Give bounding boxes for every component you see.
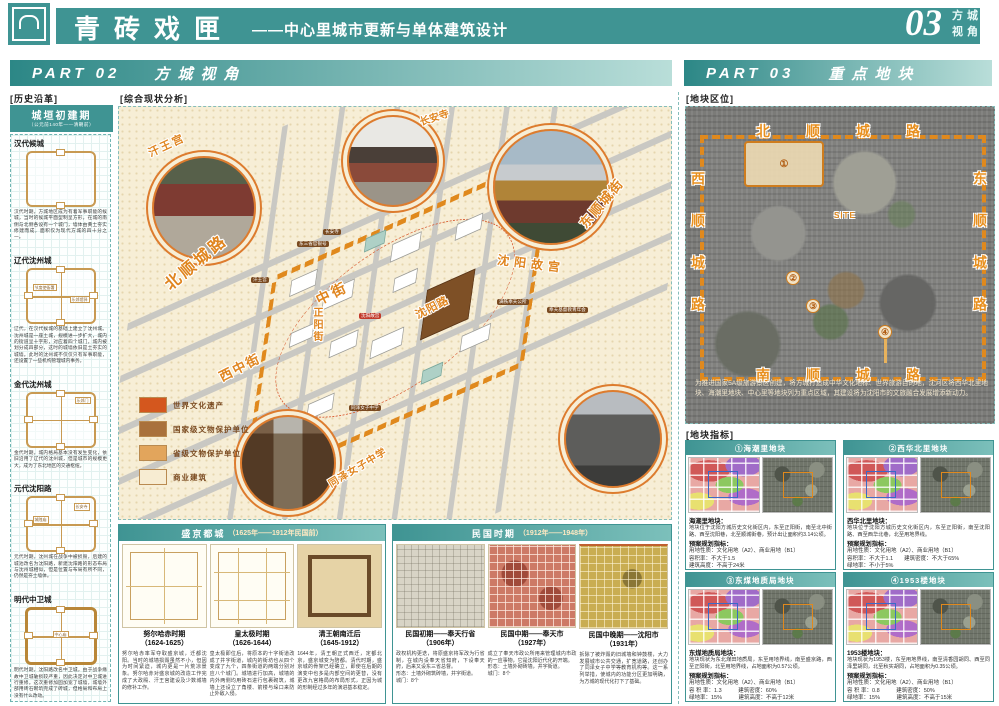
han-city-diagram	[26, 151, 96, 207]
part02-title: 方城视角	[154, 63, 246, 84]
historic-building-photo	[564, 390, 662, 488]
hanwanggong-label: 汗王宫	[145, 130, 187, 161]
plot-boundary-orange	[783, 472, 813, 498]
period-name: 民国中期——奉天市	[501, 631, 564, 638]
zoning-map-image	[846, 589, 918, 645]
plot-panel-title: ③东煤地质局地块	[686, 573, 835, 587]
shenyang-city-map-image	[579, 544, 668, 629]
plot-boundary-orange	[941, 604, 971, 630]
fengtian-province-map-image	[396, 544, 485, 628]
plot2-marker: ②	[786, 271, 800, 285]
plot-images	[846, 457, 991, 513]
logo-arch-icon	[19, 15, 39, 29]
era-yuan: 元代沈阳路 城隍庙 长安寺 元代时期，沈州城在战争中被损毁，后建的城池改名为沈阳…	[14, 482, 107, 579]
plot-metric-line: 容 积 率：0.8 建筑密度：50%	[847, 688, 990, 695]
legend-row: 商业建筑	[139, 465, 309, 489]
gate-icon	[56, 390, 65, 397]
nurhaci-map-image	[122, 544, 207, 628]
period-text: 1644年，清王朝正式西迁，定都北京，盛京城变为陪都。清代时期，盛京城的骨架已经…	[297, 651, 382, 692]
plot-panel-title: ②西华北里地块	[844, 441, 993, 455]
period-caption: 民国中期——奉天市 （1927年）	[488, 630, 577, 649]
plot-panel-3: ③东煤地质局地块 东煤地质局地块： 地块现状为东北煤田地质局，东至用地界线，南至…	[685, 572, 836, 702]
road-label-west: 西顺城路	[688, 171, 708, 339]
plot-metric-line: 用地性质：文化用地（A2）、商业用地（B1）	[689, 548, 832, 555]
gate-icon	[24, 416, 33, 423]
diagram-label: 长安寺	[74, 503, 90, 510]
period-name: 皇太极时期	[235, 631, 270, 638]
diagram-street	[61, 394, 63, 446]
period-text: 努尔哈赤率军夺取盛京城，迁都沈阳。当时的城墙损毁虽然不小，但因为时间紧迫，城内更…	[122, 651, 207, 692]
plot-boundary-orange	[941, 472, 971, 498]
history-header-title: 城垣初建期	[10, 105, 113, 122]
plot-panel-4: ④1953楼地块 1953楼地块： 地块现状为1953楼，东至用地界线，南至清香…	[843, 572, 994, 702]
legend-row: 省级文物保护单位	[139, 441, 309, 465]
gate-icon	[89, 520, 98, 527]
plot-name: 海潮里地块：	[689, 516, 832, 525]
plot-metric-line: 容 积 率：1.3 建筑密度：60%	[689, 688, 832, 695]
plot-boundary-blue	[708, 603, 738, 630]
satellite-thumb-image	[920, 589, 992, 645]
plot-metric-line: 容积率：不大于1.5	[689, 556, 832, 563]
legend-swatch	[139, 421, 167, 437]
period-column: 皇太极时期 （1626-1644） 皇太极即位后，将原本的十字街道改成了井字街道…	[210, 544, 295, 698]
gate-icon	[89, 416, 98, 423]
plot-panel-2: ②西华北里地块 西华北里地块： 地块位于沈阳方城历史文化街区内，东至正阳街，南至…	[843, 440, 994, 570]
road-label-north: 北顺城路	[756, 121, 956, 141]
legend-row: 国家级文物保护单位	[139, 417, 309, 441]
period-years: （1927年）	[514, 640, 551, 647]
satellite-thumb-image	[920, 457, 992, 513]
ming-city-diagram: 中心庙	[25, 607, 97, 665]
diagram-label: 节度使衙署	[33, 284, 57, 291]
page-label-bottom: 视角	[952, 23, 982, 39]
plot-metrics-label: 预案规划指标：	[847, 671, 990, 680]
plot-metric-line: 绿地率：15% 建筑高度：不高于15米	[847, 695, 990, 702]
legend-swatch	[139, 445, 167, 461]
yuan-city-diagram: 城隍庙 长安寺	[26, 496, 96, 552]
gate-icon	[56, 202, 65, 209]
changansi-photo	[347, 115, 439, 207]
plot4-marker: ④	[878, 325, 892, 339]
gate-icon	[24, 520, 33, 527]
map-line	[214, 600, 290, 601]
plot-boundary-orange	[783, 604, 813, 630]
building-tag: 奉天基督教青年会	[547, 307, 588, 313]
plot-metric-line: 容积率：不大于1.1 建筑密度：不大于65%	[847, 556, 990, 563]
plot-text: 东煤地质局地块： 地块现状为东北煤田地质局，东至用地界线，南至盛京路，西至正阳街…	[686, 647, 835, 702]
palace-red-tag: 沈阳故宫	[359, 313, 381, 319]
legend-label: 省级文物保护单位	[173, 448, 241, 459]
plot-metric-line: 绿地率：不小于5%	[847, 563, 990, 570]
gate-icon	[56, 319, 65, 326]
plot-panel-title: ①海潮里地块	[686, 441, 835, 455]
minguo-title: 民国时期	[472, 527, 516, 540]
era-title: 元代沈阳路	[14, 483, 107, 494]
plot-desc: 地块现状为东北煤田地质局，东至用地界线，南至盛京路，西至正阳街，北至用地界线，占…	[689, 657, 832, 670]
period-column: 民国中晚期——沈阳市 （1931年） 拆除了被炸毁的旧城墙和钟鼓楼，大力发展城市…	[579, 544, 668, 686]
period-name: 民国初期——奉天行省	[405, 631, 475, 638]
plot-desc: 地块位于沈阳方城历史文化街区内，东至正阳街，南至沈阳路、西至西华北巷，北至用地界…	[847, 525, 990, 538]
isometric-analysis-map: 汗王宫 长安寺 沈阳故宫 同泽女子中学 北顺城路 东顺城街 中街 西中街 正阳街…	[118, 106, 672, 520]
period-name: 努尔哈赤时期	[143, 631, 185, 638]
gate-icon	[56, 547, 65, 554]
diagram-label: 中心庙	[53, 631, 69, 638]
plot-name: 1953楼地块：	[847, 648, 990, 657]
legend-label: 国家级文物保护单位	[173, 424, 250, 435]
plot-metric-line: 用地性质：文化用地（A2）、商业用地（B1）	[847, 548, 990, 555]
map-legend: 世界文化遗产 国家级文物保护单位 省级文物保护单位 商业建筑	[139, 393, 309, 489]
era-han: 汉代候城 汉代时期，方城地区成为有着军事职能的候城，当时的候城平面型制呈方形，在…	[14, 137, 107, 241]
gate-icon	[56, 266, 65, 273]
shengjing-panel-header: 盛京都城 （1625年——1912年民国前）	[119, 525, 385, 541]
plot-text: 海潮里地块： 地块位于沈阳方城历史文化街区内，东至正阳街，南至北中街路、西至沈阳…	[686, 515, 835, 570]
board-subtitle: ——中心里城市更新与单体建筑设计	[252, 19, 508, 40]
logo-frame	[12, 7, 46, 41]
map-line	[266, 548, 267, 623]
part03-bar: PART 03 重点地块	[684, 60, 992, 86]
presentation-board: 青砖戏匣 ——中心里城市更新与单体建筑设计 03 方城 视角 PART 02 方…	[0, 0, 999, 706]
analysis-section-label: [综合现状分析]	[120, 92, 188, 105]
page-number: 03	[905, 2, 942, 45]
minguo-subtitle: （1912年——1948年）	[519, 528, 592, 538]
shengjing-body: 努尔哈赤时期 （1624-1625） 努尔哈赤率军夺取盛京城，迁都沈阳。当时的城…	[119, 541, 385, 701]
zoning-map-image	[688, 457, 760, 513]
legend-label: 世界文化遗产	[173, 400, 224, 411]
history-header: 城垣初建期 （公元前140年——清朝前）	[10, 105, 113, 132]
period-years: （1624-1625）	[141, 640, 188, 647]
period-caption: 民国初期——奉天行省 （1906年）	[396, 630, 485, 649]
legend-row: 世界文化遗产	[139, 393, 309, 417]
zoning-map-image	[846, 457, 918, 513]
part02-label: PART 02	[32, 65, 120, 82]
period-text: 政权机构更迭，将原盛京将军改为行省制，在城内设奉天省知府，下设奉天府，后来又设东…	[396, 651, 485, 685]
minguo-panel: 民国时期 （1912年——1948年） 民国初期——奉天行省 （1906年） 政…	[392, 524, 672, 704]
liao-city-diagram: 节度使衙署 乐郊馆驿	[26, 268, 96, 324]
period-years: （1931年）	[605, 641, 642, 648]
gate-icon	[56, 606, 65, 613]
period-years: （1906年）	[422, 640, 459, 647]
column-divider	[678, 92, 679, 704]
history-section-label: [历史沿革]	[10, 92, 58, 105]
plot4-leader-line	[884, 339, 887, 363]
building-tag: 汗王宫	[251, 277, 269, 283]
era-text: 汉代时期，方城地区成为有着军事职能的候城，当时的候城平面型制呈方形，在城的南侧与…	[14, 209, 107, 241]
gate-icon	[24, 632, 33, 639]
period-column: 清王朝南迁后 （1645-1912） 1644年，清王朝正式西迁，定都北京，盛京…	[297, 544, 382, 698]
satellite-location-map: 北顺城路 南顺城路 西顺城路 东顺城路 ① SITE ② ③ ④ 为推进国家5A…	[685, 106, 995, 424]
satellite-thumb-image	[762, 589, 834, 645]
map-outline	[308, 555, 371, 617]
plot-boundary-blue	[866, 471, 896, 498]
diagram-street	[61, 270, 63, 322]
period-years: （1645-1912）	[316, 640, 363, 647]
plot-desc: 地块位于沈阳方城历史文化街区内，东至正阳街，南至北中街路、西至沈阳巷，北至顺城街…	[689, 525, 832, 538]
plot-metrics-label: 预案规划指标：	[689, 539, 832, 548]
location-section-label: [地块区位]	[686, 92, 734, 105]
location-caption: 为推进国家5A级旅游景区创建，将方城打造成中华文化地标、世界旅游目的地，沈河区将…	[695, 379, 988, 399]
period-text: 皇太极即位后，将原本的十字街道改成了井字街道，城内的街坊也从四个变成了九个，四条…	[210, 651, 295, 698]
era-text: 辽代，在汉代候城的基础上建立了沈州城。沈州城是一座土城，规模进一步扩大，城内的街…	[14, 326, 107, 364]
shengjing-subtitle: （1625年——1912年民国前）	[228, 528, 322, 538]
era-title: 明代中卫城	[14, 594, 107, 605]
gate-icon	[89, 292, 98, 299]
satellite-thumb-image	[762, 457, 834, 513]
plot-name: 西华北里地块：	[847, 516, 990, 525]
diagram-label: 乐郊馆驿	[70, 296, 90, 303]
fengtian-city-map-image	[488, 544, 577, 628]
shengjing-title: 盛京都城	[181, 527, 225, 540]
plot-metric-line: 用地性质：文化用地（A2）、商业用地（B1）	[689, 680, 832, 687]
minguo-body: 民国初期——奉天行省 （1906年） 政权机构更迭，将原盛京将军改为行省制，在城…	[393, 541, 671, 689]
period-text: 成立了奉天市政公所用来管理城内市政的一应事物，它是沈阳近代化的开端。 形态：土墙…	[488, 651, 577, 678]
zoning-map-image	[688, 589, 760, 645]
building-tag: 东三省官银号	[297, 241, 329, 247]
era-text: 元代时期，沈州城在战争中被损毁，后建的城池改名为沈阳路，新建沈阳路的形态布局与沈…	[14, 554, 107, 579]
building-tag: 满铁奉天公所	[497, 299, 529, 305]
plot-metrics-label: 预案规划指标：	[689, 671, 832, 680]
era-jin: 金代沈州城 乐郊门 金代时期，城内格局基本没有发生变化，依旧沿用了辽代的沈州城，…	[14, 378, 107, 469]
gate-icon	[56, 149, 65, 156]
diagram-label: 乐郊门	[75, 397, 91, 404]
plot-metric-line: 建筑高度：不高于24米	[689, 563, 832, 570]
plot-boundary-blue	[866, 603, 896, 630]
plot-panel-1: ①海潮里地块 海潮里地块： 地块位于沈阳方城历史文化街区内，东至正阳街，南至北中…	[685, 440, 836, 570]
city-wall-dashed-boundary	[700, 135, 986, 381]
huangtaiji-map-image	[210, 544, 295, 628]
plot-metrics-label: 预案规划指标：	[847, 539, 990, 548]
diagram-street	[61, 498, 63, 550]
period-name: 清王朝南迁后	[319, 631, 361, 638]
building-tag: 长安寺	[323, 229, 341, 235]
page-label-top: 方城	[952, 7, 982, 23]
plot-images	[688, 457, 833, 513]
part03-title: 重点地块	[828, 63, 920, 84]
plot3-marker: ③	[806, 299, 820, 313]
period-caption: 清王朝南迁后 （1645-1912）	[297, 630, 382, 649]
plot-images	[846, 589, 991, 645]
legend-swatch	[139, 397, 167, 413]
board-title: 青砖戏匣	[74, 9, 234, 46]
gate-icon	[56, 494, 65, 501]
gate-icon	[24, 292, 33, 299]
period-column: 民国初期——奉天行省 （1906年） 政权机构更迭，将原盛京将军改为行省制，在城…	[396, 544, 485, 686]
map-line	[164, 548, 165, 623]
plot-panel-title: ④1953楼地块	[844, 573, 993, 587]
jin-city-diagram: 乐郊门	[26, 392, 96, 448]
gate-icon	[56, 659, 65, 666]
plot-images	[688, 589, 833, 645]
history-timeline-box: 汉代候城 汉代时期，方城地区成为有着军事职能的候城，当时的候城平面型制呈方形，在…	[10, 134, 111, 702]
map-line	[214, 572, 290, 573]
period-years: （1626-1644）	[228, 640, 275, 647]
history-header-subtitle: （公元前140年——清朝前）	[10, 122, 113, 128]
era-text: 金代时期，城内格局基本没有发生变化，依旧沿用了辽代的沈州城，但是城市的规模更大，…	[14, 450, 107, 469]
plot-metric-line: 用地性质：文化用地（A2）、商业用地（B1）	[847, 680, 990, 687]
era-text: 明代时期，沈阳路改名中卫城，由于战争缘故中卫城破损较严重，因此决定对中卫城进行重…	[14, 667, 107, 699]
site-tag: SITE	[834, 211, 856, 220]
period-caption: 皇太极时期 （1626-1644）	[210, 630, 295, 649]
part02-bar: PART 02 方城视角	[10, 60, 672, 86]
shengjing-panel: 盛京都城 （1625年——1912年民国前） 努尔哈赤时期 （1624-1625…	[118, 524, 386, 704]
period-caption: 民国中晚期——沈阳市 （1931年）	[579, 631, 668, 650]
plot1-marker: ①	[780, 159, 789, 170]
period-caption: 努尔哈赤时期 （1624-1625）	[122, 630, 207, 649]
changansi-label: 长安寺	[417, 106, 450, 128]
gate-icon	[89, 632, 98, 639]
era-ming: 明代中卫城 中心庙 明代时期，沈阳路改名中卫城，由于战争缘故中卫城破损较严重，因…	[14, 593, 107, 699]
plot-metric-line: 绿地率：15% 建筑高度：不高于12米	[689, 695, 832, 702]
legend-label: 商业建筑	[173, 472, 207, 483]
period-column: 努尔哈赤时期 （1624-1625） 努尔哈赤率军夺取盛京城，迁都沈阳。当时的城…	[122, 544, 207, 698]
plot1-highlight: ①	[744, 141, 824, 187]
period-column: 民国中期——奉天市 （1927年） 成立了奉天市政公所用来管理城内市政的一应事物…	[488, 544, 577, 686]
minguo-panel-header: 民国时期 （1912年——1948年）	[393, 525, 671, 541]
era-liao: 辽代沈州城 节度使衙署 乐郊馆驿 辽代，在汉代候城的基础上建立了沈州城。沈州城是…	[14, 254, 107, 364]
road-label-zhengyang: 正阳街	[309, 307, 324, 343]
era-title: 汉代候城	[14, 138, 107, 149]
map-line	[238, 548, 239, 623]
part03-label: PART 03	[706, 65, 794, 82]
era-title: 辽代沈州城	[14, 255, 107, 266]
plot-text: 1953楼地块： 地块现状为1953楼，东至用地界线，南至清香园胡同、西至同泽里…	[844, 647, 993, 702]
plot-desc: 地块现状为1953楼，东至用地界线，南至清香园胡同、西至同泽里胡同，北至秋实胡同…	[847, 657, 990, 670]
legend-swatch	[139, 469, 167, 485]
period-name: 民国中晚期——沈阳市	[589, 632, 659, 639]
brick-window-logo-icon	[8, 3, 50, 45]
plot-text: 西华北里地块： 地块位于沈阳方城历史文化街区内，东至正阳街，南至沈阳路、西至西华…	[844, 515, 993, 570]
gate-icon	[56, 443, 65, 450]
qing-map-image	[297, 544, 382, 628]
plot-boundary-blue	[708, 471, 738, 498]
building-tag: 同泽女子中学	[349, 405, 381, 411]
map-outline	[218, 552, 286, 619]
plot-name: 东煤地质局地块：	[689, 648, 832, 657]
era-title: 金代沈州城	[14, 379, 107, 390]
road-label-east: 东顺城路	[970, 171, 990, 339]
period-text: 拆除了被炸毁的旧城墙和钟鼓楼，大力发展城市公共交通，扩宽道路，还创办了同泽女子中…	[579, 652, 668, 686]
diagram-label: 城隍庙	[33, 516, 49, 523]
